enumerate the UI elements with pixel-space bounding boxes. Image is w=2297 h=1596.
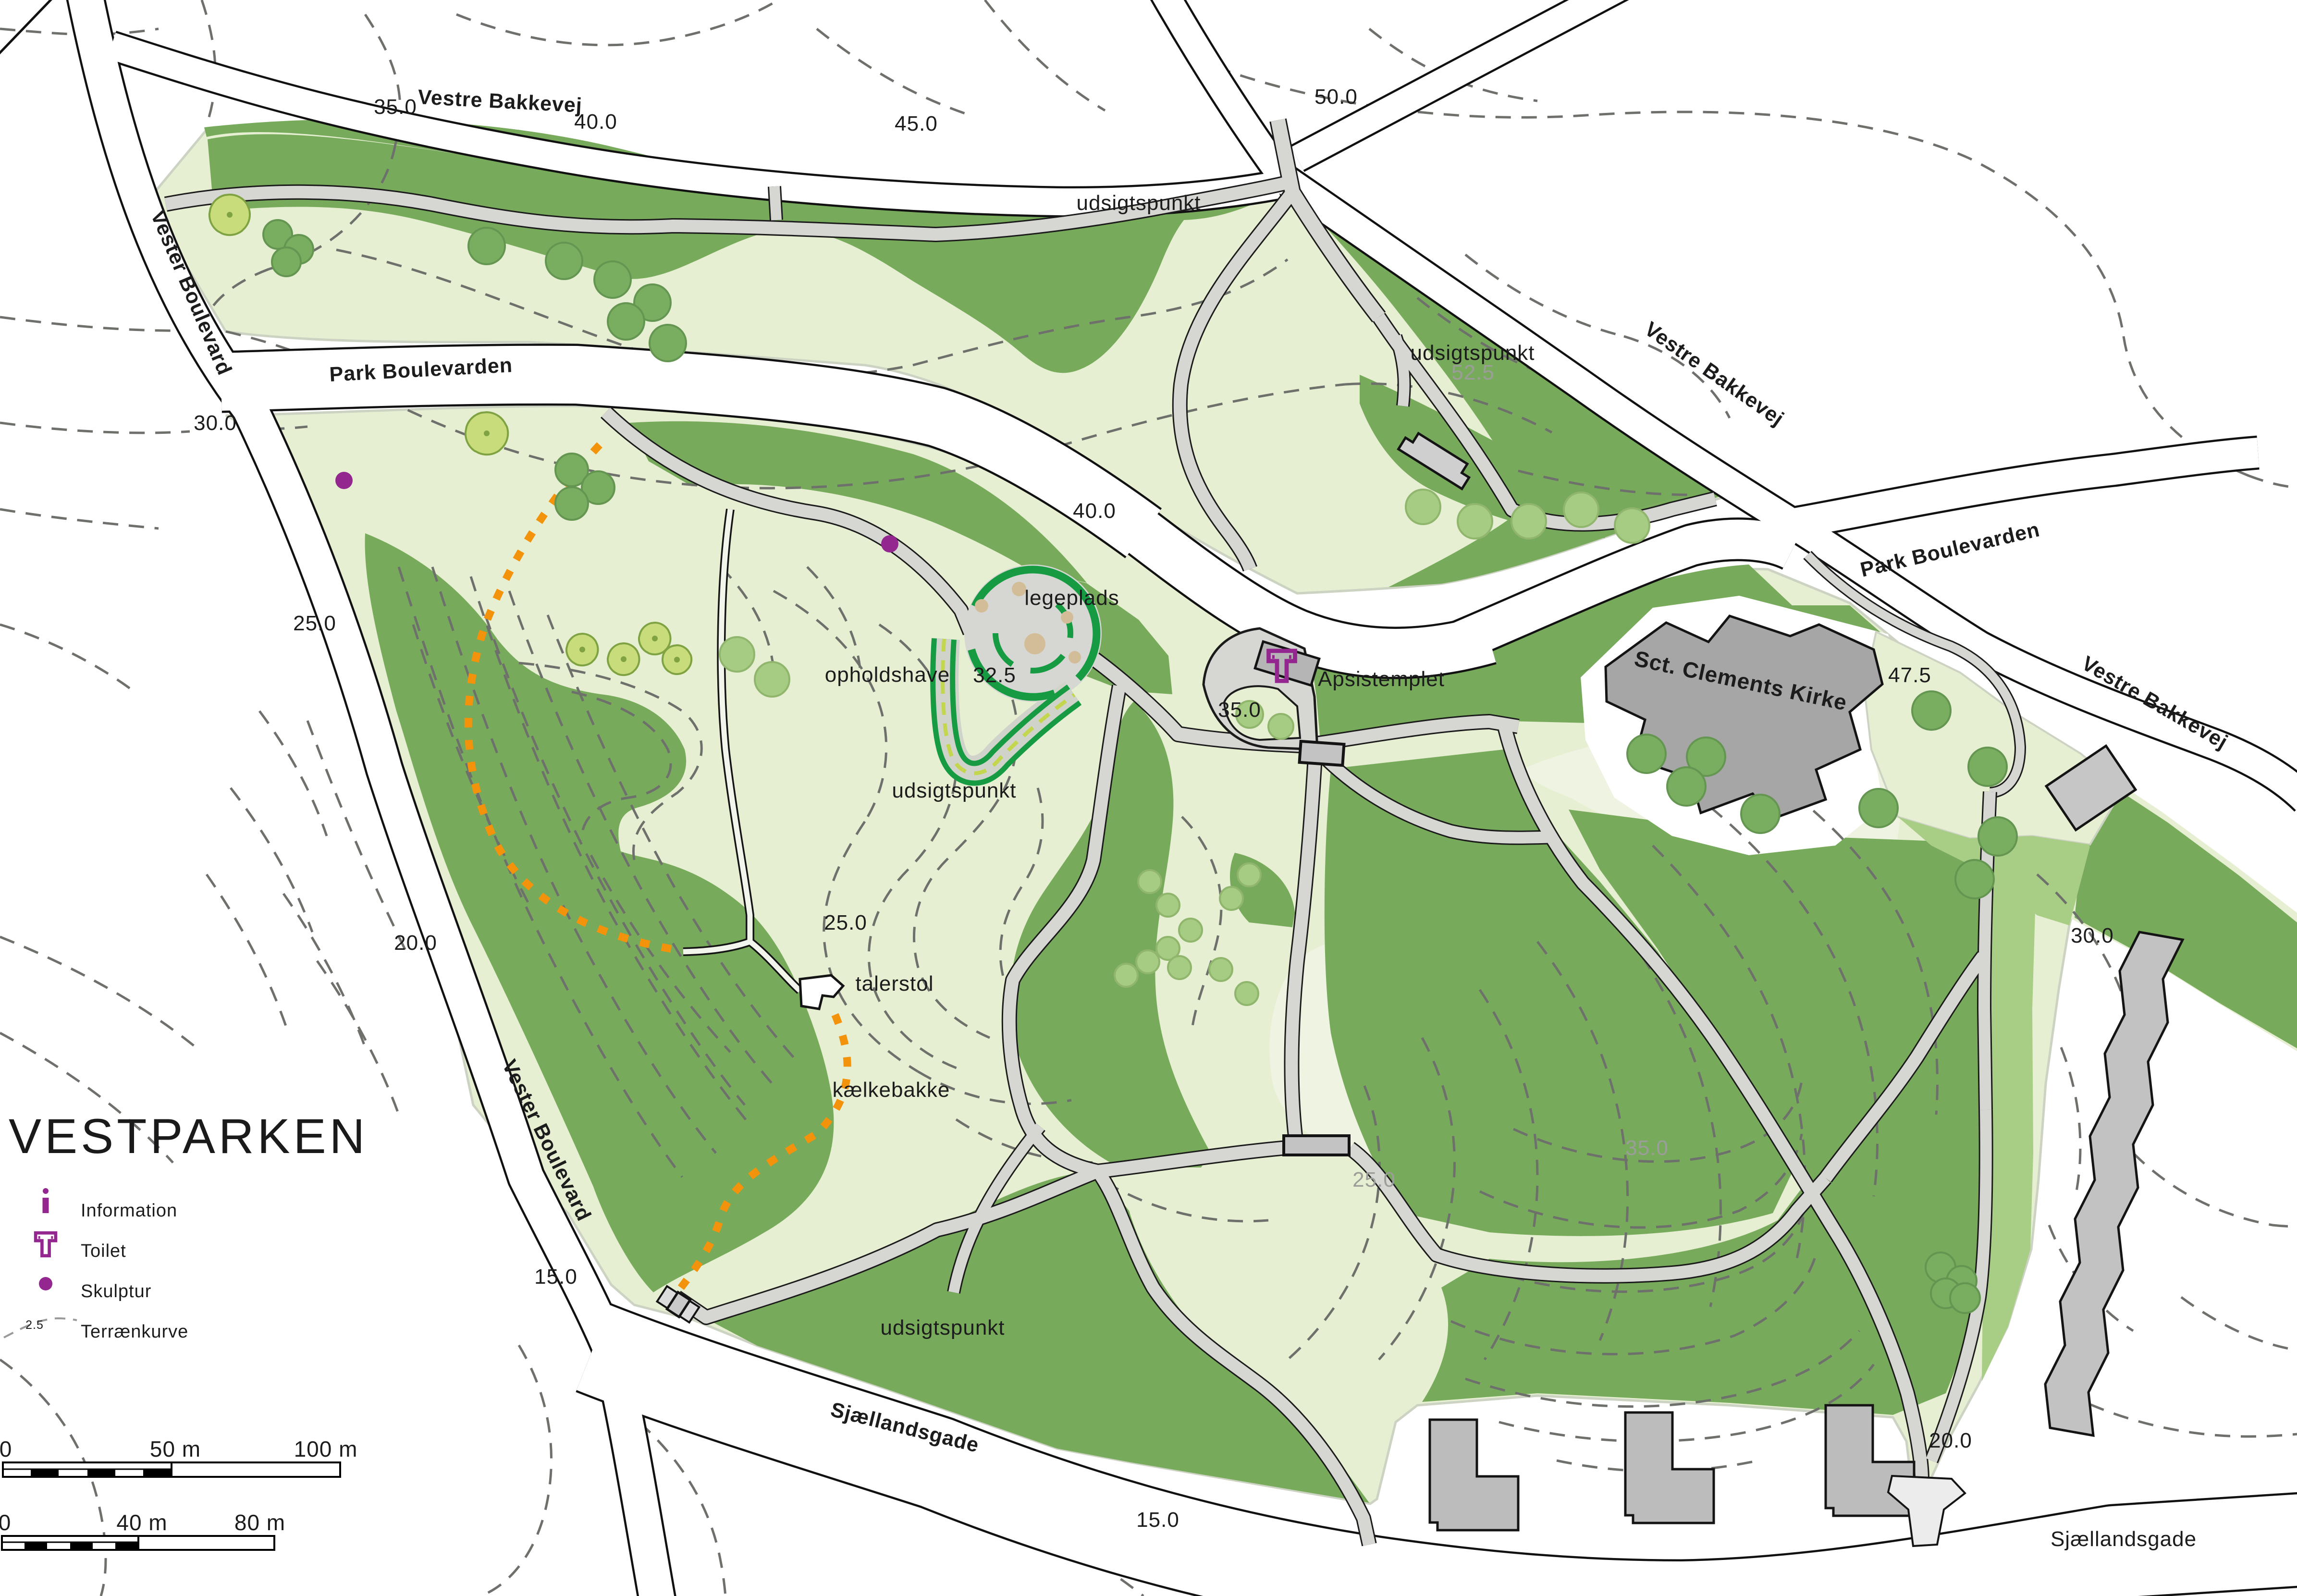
- svg-text:20.0: 20.0: [1929, 1429, 1972, 1452]
- svg-text:kælkebakke: kælkebakke: [833, 1078, 950, 1102]
- svg-text:47.5: 47.5: [1888, 663, 1931, 687]
- svg-text:50 m: 50 m: [150, 1436, 201, 1461]
- svg-text:35.0: 35.0: [1218, 698, 1261, 722]
- svg-text:50.0: 50.0: [1314, 85, 1358, 109]
- svg-text:25.0: 25.0: [1352, 1168, 1396, 1191]
- svg-text:0: 0: [0, 1436, 12, 1461]
- svg-text:25.0: 25.0: [824, 911, 867, 934]
- svg-text:Apsistemplet: Apsistemplet: [1318, 667, 1445, 691]
- svg-text:25.0: 25.0: [293, 612, 336, 635]
- svg-text:Toilet: Toilet: [81, 1241, 126, 1261]
- svg-text:Information: Information: [81, 1201, 177, 1221]
- svg-text:15.0: 15.0: [534, 1265, 577, 1289]
- svg-text:opholdshave: opholdshave: [825, 663, 950, 687]
- svg-text:100 m: 100 m: [294, 1436, 358, 1461]
- svg-text:15.0: 15.0: [1136, 1508, 1179, 1532]
- svg-text:0: 0: [0, 1510, 11, 1535]
- svg-text:40 m: 40 m: [116, 1510, 167, 1535]
- svg-text:Terrænkurve: Terrænkurve: [81, 1322, 188, 1342]
- svg-text:2.5: 2.5: [25, 1318, 44, 1332]
- svg-text:talerstol: talerstol: [855, 972, 934, 995]
- svg-text:udsigtspunkt: udsigtspunkt: [892, 779, 1016, 802]
- svg-text:VESTPARKEN: VESTPARKEN: [9, 1109, 368, 1164]
- svg-text:legeplads: legeplads: [1024, 586, 1119, 610]
- svg-text:udsigtspunkt: udsigtspunkt: [1076, 191, 1201, 215]
- svg-text:20.0: 20.0: [394, 931, 437, 955]
- svg-text:Sjællandsgade: Sjællandsgade: [2051, 1527, 2197, 1551]
- svg-text:40.0: 40.0: [1073, 499, 1116, 523]
- svg-text:Skulptur: Skulptur: [81, 1281, 151, 1301]
- svg-text:32.5: 32.5: [973, 663, 1016, 687]
- svg-text:30.0: 30.0: [194, 411, 237, 435]
- svg-text:udsigtspunkt: udsigtspunkt: [1410, 341, 1535, 365]
- svg-text:udsigtspunkt: udsigtspunkt: [880, 1316, 1005, 1339]
- svg-text:35.0: 35.0: [1625, 1136, 1669, 1160]
- svg-text:40.0: 40.0: [574, 110, 617, 134]
- svg-text:35.0: 35.0: [374, 95, 417, 119]
- svg-text:80 m: 80 m: [234, 1510, 285, 1535]
- svg-text:45.0: 45.0: [895, 112, 938, 135]
- svg-text:30.0: 30.0: [2071, 924, 2114, 947]
